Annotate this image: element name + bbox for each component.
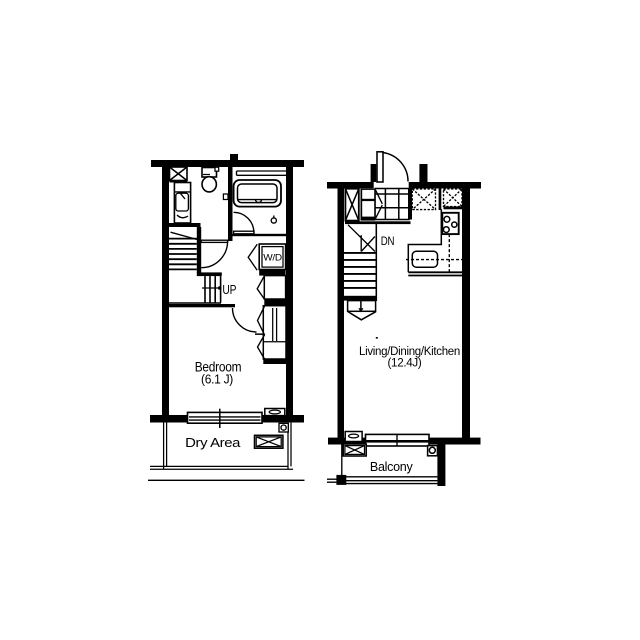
svg-text:W/D: W/D <box>263 252 282 263</box>
svg-text:Dry Area: Dry Area <box>185 436 240 450</box>
svg-text:DN: DN <box>381 234 395 248</box>
svg-text:Living/Dining/Kitchen: Living/Dining/Kitchen <box>359 346 460 358</box>
svg-text:(6.1 J): (6.1 J) <box>201 373 233 387</box>
svg-text:Balcony: Balcony <box>370 460 414 474</box>
svg-text:UP: UP <box>222 282 236 297</box>
svg-text:(12.4J): (12.4J) <box>388 357 422 369</box>
